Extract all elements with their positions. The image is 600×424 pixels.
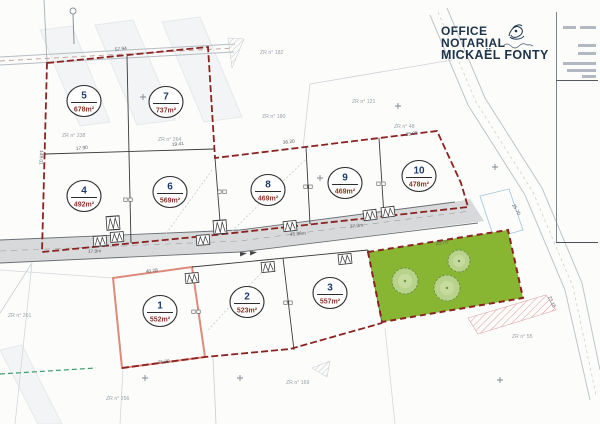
hatch-triangle-bottom bbox=[312, 361, 330, 377]
lot-area: 523m² bbox=[237, 308, 258, 315]
gate-symbol-icon bbox=[261, 261, 275, 272]
cross-mark-icon bbox=[142, 375, 148, 381]
lot-number: 3 bbox=[327, 283, 333, 294]
gate-symbol-icon bbox=[213, 220, 227, 234]
lot-marker-1: 1552m² bbox=[143, 296, 177, 327]
tree-icon bbox=[434, 275, 460, 301]
lot-marker-2: 2523m² bbox=[230, 287, 264, 318]
lot-number: 7 bbox=[163, 92, 169, 103]
parcel-label: ZR n° 261 bbox=[8, 313, 32, 319]
tree-icon bbox=[392, 268, 418, 294]
titleblock-text-row bbox=[582, 75, 596, 78]
neighbour-parcel-lines bbox=[0, 0, 600, 424]
titleblock-text-row bbox=[567, 69, 596, 72]
lot-marker-4: 4492m² bbox=[67, 181, 101, 212]
dimension-label: 36.20 bbox=[283, 139, 296, 146]
gate-symbol-icon bbox=[381, 206, 395, 218]
lot-number: 10 bbox=[413, 166, 425, 177]
cross-mark-icon bbox=[395, 103, 401, 109]
titleblock-text-row bbox=[578, 52, 596, 55]
parcel-label: ZR n° 180 bbox=[262, 114, 286, 120]
notary-logo: OFFICE NOTARIAL MICKAËL FONTY bbox=[441, 25, 600, 61]
boundary-stone-icon bbox=[218, 190, 226, 193]
dimension-label: 25.88 bbox=[405, 130, 418, 138]
parcel-label: ZR n° 256 bbox=[106, 396, 130, 402]
gate-symbol-icon bbox=[363, 209, 377, 221]
parcel-label: ZR n° 238 bbox=[62, 133, 86, 139]
lot-number: 5 bbox=[81, 91, 87, 102]
gate-symbol-icon bbox=[110, 232, 124, 243]
lot-number: 9 bbox=[342, 173, 348, 184]
titleblock-text-row bbox=[563, 62, 596, 65]
lot-area: 469m² bbox=[335, 189, 356, 196]
lot-area: 469m² bbox=[258, 196, 279, 203]
hatch-triangle-top bbox=[228, 38, 244, 68]
titleblock-text-row bbox=[580, 26, 596, 29]
lot-area: 557m² bbox=[320, 299, 341, 306]
parcel-label: ZR n° 48 bbox=[394, 124, 415, 130]
dimension-label: 149.01 bbox=[37, 150, 44, 165]
lot-marker-3: 3557m² bbox=[313, 278, 347, 309]
site-plan-document: ZR n° 238ZR n° 264ZR n° 182ZR n° 180ZR n… bbox=[0, 0, 600, 424]
titleblock-horizontal-rule-top bbox=[556, 80, 598, 81]
boundary-stone-icon bbox=[192, 310, 200, 313]
gate-symbol-icon bbox=[196, 235, 210, 246]
lot-number: 4 bbox=[81, 186, 87, 197]
parcel-label: ZR n° 169 bbox=[286, 380, 310, 386]
lot-number: 6 bbox=[167, 182, 173, 193]
parcel-label: ZR n° 55 bbox=[512, 334, 533, 340]
lot-area: 569m² bbox=[160, 198, 181, 205]
dimension-label: 25.39 bbox=[158, 359, 171, 366]
notary-logo-sketch-icon bbox=[501, 22, 535, 54]
dimension-label: 17.90 bbox=[76, 145, 89, 152]
lot-marker-10: 10478m² bbox=[402, 161, 436, 192]
gate-symbol-icon bbox=[283, 220, 297, 231]
lot-marker-5: 5678m² bbox=[67, 86, 101, 117]
gate-symbol-icon bbox=[185, 272, 199, 283]
lower-lot-lines bbox=[192, 250, 382, 350]
lot-marker-9: 9469m² bbox=[328, 168, 362, 199]
dimension-label: 19.41 bbox=[172, 141, 185, 148]
parcel-label: ZR n° 121 bbox=[352, 99, 376, 105]
cross-mark-icon bbox=[317, 175, 323, 181]
cross-mark-icon bbox=[492, 164, 498, 170]
dimension-label: 25.70 bbox=[510, 203, 521, 217]
lot-area: 737m² bbox=[156, 108, 177, 115]
titleblock-vertical-rule bbox=[556, 12, 557, 243]
lot-area: 678m² bbox=[74, 107, 95, 114]
parcel-label: ZR n° 182 bbox=[260, 50, 284, 56]
lot-number: 2 bbox=[244, 292, 250, 303]
lot-area: 552m² bbox=[150, 317, 171, 324]
lot-marker-8: 8469m² bbox=[251, 175, 285, 206]
titleblock-text-row bbox=[563, 26, 576, 29]
boundary-stone-icon bbox=[377, 182, 385, 185]
lot-area: 478m² bbox=[409, 182, 430, 189]
lot-number: 8 bbox=[265, 180, 271, 191]
tree-icon bbox=[448, 250, 470, 272]
cross-mark-icon bbox=[497, 377, 503, 383]
titleblock-horizontal-rule-bottom bbox=[556, 242, 598, 243]
cadastral-plan-drawing: ZR n° 238ZR n° 264ZR n° 182ZR n° 180ZR n… bbox=[0, 0, 600, 424]
lot-marker-6: 6569m² bbox=[153, 177, 187, 208]
gate-symbol-icon bbox=[106, 216, 120, 230]
lot-number: 1 bbox=[157, 301, 163, 312]
gate-symbol-icon bbox=[338, 253, 352, 264]
lot-area: 492m² bbox=[74, 202, 95, 209]
cross-mark-icon bbox=[237, 375, 243, 381]
titleblock-text-row bbox=[578, 44, 596, 47]
dimension-label: 40.28 bbox=[146, 268, 159, 275]
gate-symbol-icon bbox=[93, 236, 107, 247]
boundary-stone-icon bbox=[124, 198, 132, 201]
dimension-label: 17.9m bbox=[88, 248, 102, 255]
lot-marker-7: 7737m² bbox=[149, 87, 183, 118]
